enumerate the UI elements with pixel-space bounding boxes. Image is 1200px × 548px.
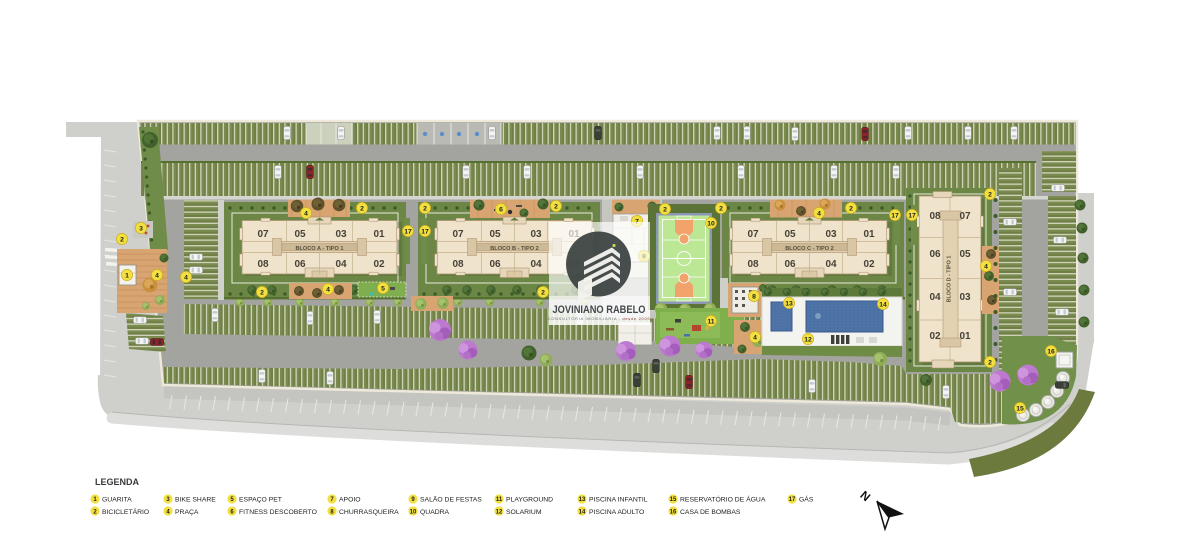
svg-text:4: 4	[984, 263, 988, 270]
svg-text:06: 06	[489, 259, 501, 270]
svg-text:15: 15	[670, 497, 677, 503]
svg-text:CHURRASQUEIRA: CHURRASQUEIRA	[339, 509, 399, 516]
svg-text:4: 4	[753, 334, 757, 341]
svg-text:2: 2	[988, 191, 992, 198]
svg-text:06: 06	[929, 249, 941, 260]
svg-text:01: 01	[959, 331, 971, 342]
svg-text:CONSULTORIA IMOBILIÁRIA . desd: CONSULTORIA IMOBILIÁRIA . desde 2009	[548, 316, 651, 321]
svg-text:3: 3	[139, 225, 143, 232]
svg-text:4: 4	[817, 210, 821, 217]
svg-text:2: 2	[663, 206, 667, 213]
svg-text:LEGENDA: LEGENDA	[95, 477, 140, 487]
svg-text:13: 13	[785, 300, 793, 307]
svg-text:8: 8	[752, 293, 756, 300]
svg-text:01: 01	[863, 229, 875, 240]
svg-text:5: 5	[381, 285, 385, 292]
svg-text:05: 05	[489, 229, 501, 240]
svg-text:08: 08	[452, 259, 464, 270]
svg-text:2: 2	[988, 359, 992, 366]
svg-text:05: 05	[784, 229, 796, 240]
svg-text:BICICLETÁRIO: BICICLETÁRIO	[102, 507, 149, 516]
svg-text:17: 17	[891, 212, 899, 219]
svg-text:PRAÇA: PRAÇA	[175, 509, 199, 516]
svg-text:PISCINA INFANTIL: PISCINA INFANTIL	[589, 496, 648, 503]
svg-text:08: 08	[929, 211, 941, 222]
svg-text:11: 11	[707, 318, 714, 325]
svg-text:03: 03	[825, 229, 837, 240]
svg-text:2: 2	[849, 205, 853, 212]
svg-text:07: 07	[959, 211, 971, 222]
svg-text:17: 17	[789, 497, 796, 503]
svg-text:04: 04	[929, 292, 941, 303]
svg-text:08: 08	[747, 259, 759, 270]
svg-text:4: 4	[155, 272, 159, 279]
svg-text:04: 04	[530, 259, 542, 270]
svg-text:13: 13	[579, 497, 586, 503]
svg-text:4: 4	[304, 210, 308, 217]
svg-text:2: 2	[554, 203, 558, 210]
svg-text:12: 12	[804, 336, 812, 343]
svg-text:14: 14	[579, 510, 586, 516]
svg-text:2: 2	[120, 236, 124, 243]
svg-text:17: 17	[404, 228, 412, 235]
svg-text:2: 2	[360, 205, 364, 212]
svg-text:04: 04	[825, 259, 837, 270]
svg-text:02: 02	[373, 259, 385, 270]
svg-text:2: 2	[719, 205, 723, 212]
svg-text:CASA DE BOMBAS: CASA DE BOMBAS	[680, 509, 741, 516]
svg-text:03: 03	[959, 292, 971, 303]
svg-text:02: 02	[863, 259, 875, 270]
svg-text:ESPAÇO PET: ESPAÇO PET	[239, 496, 282, 503]
svg-text:08: 08	[257, 259, 269, 270]
svg-text:03: 03	[530, 229, 542, 240]
svg-text:FITNESS DESCOBERTO: FITNESS DESCOBERTO	[239, 509, 317, 516]
svg-text:JOVINIANO RABELO: JOVINIANO RABELO	[553, 304, 646, 316]
svg-text:16: 16	[670, 510, 677, 516]
svg-text:06: 06	[294, 259, 306, 270]
svg-text:PLAYGROUND: PLAYGROUND	[506, 496, 553, 503]
svg-text:BIKE SHARE: BIKE SHARE	[175, 496, 216, 503]
svg-text:02: 02	[929, 331, 941, 342]
svg-text:17: 17	[908, 212, 916, 219]
svg-text:07: 07	[747, 229, 759, 240]
svg-text:GÁS: GÁS	[799, 494, 814, 503]
svg-text:12: 12	[496, 510, 503, 516]
svg-text:BLOCO D - TIPO 1: BLOCO D - TIPO 1	[947, 256, 953, 303]
svg-text:17: 17	[421, 228, 429, 235]
svg-text:16: 16	[1047, 348, 1055, 355]
svg-text:BLOCO A - TIPO 1: BLOCO A - TIPO 1	[295, 246, 343, 252]
svg-text:SOLARIUM: SOLARIUM	[506, 509, 542, 516]
svg-text:PISCINA ADULTO: PISCINA ADULTO	[589, 509, 644, 516]
svg-text:01: 01	[373, 229, 385, 240]
svg-text:07: 07	[452, 229, 464, 240]
svg-text:APOIO: APOIO	[339, 496, 361, 503]
svg-text:07: 07	[257, 229, 269, 240]
svg-text:QUADRA: QUADRA	[420, 509, 450, 516]
svg-text:15: 15	[1016, 405, 1024, 412]
svg-text:05: 05	[959, 249, 971, 260]
svg-text:2: 2	[423, 205, 427, 212]
svg-text:BLOCO C - TIPO 2: BLOCO C - TIPO 2	[785, 246, 833, 252]
svg-text:4: 4	[326, 286, 330, 293]
svg-text:04: 04	[335, 259, 347, 270]
svg-text:10: 10	[410, 510, 417, 516]
svg-text:4: 4	[184, 274, 188, 281]
svg-text:03: 03	[335, 229, 347, 240]
svg-text:11: 11	[496, 497, 503, 503]
svg-text:SALÃO DE FESTAS: SALÃO DE FESTAS	[420, 494, 482, 503]
svg-text:05: 05	[294, 229, 306, 240]
svg-text:10: 10	[707, 220, 715, 227]
svg-text:14: 14	[879, 301, 887, 308]
svg-text:6: 6	[499, 206, 503, 213]
svg-text:2: 2	[260, 289, 264, 296]
svg-text:06: 06	[784, 259, 796, 270]
svg-text:BLOCO B - TIPO 2: BLOCO B - TIPO 2	[490, 246, 538, 252]
svg-text:GUARITA: GUARITA	[102, 496, 132, 503]
svg-text:RESERVATÓRIO DE ÁGUA: RESERVATÓRIO DE ÁGUA	[680, 494, 766, 503]
svg-text:1: 1	[125, 272, 129, 279]
svg-text:2: 2	[541, 289, 545, 296]
